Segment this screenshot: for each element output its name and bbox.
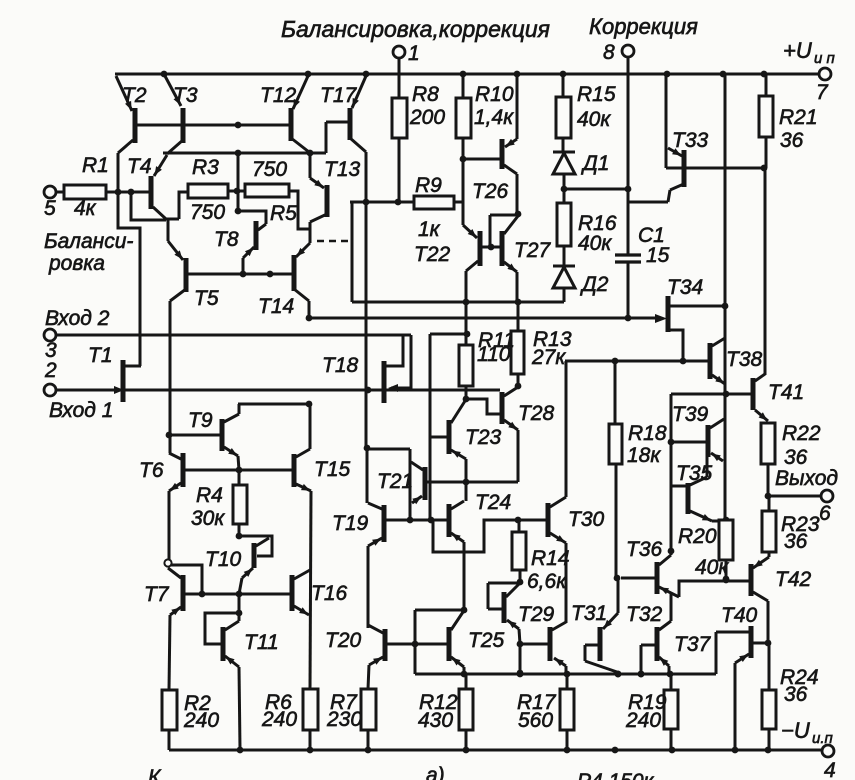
svg-text:Т23: Т23 — [465, 426, 502, 449]
svg-text:Т39: Т39 — [672, 403, 709, 426]
svg-text:6: 6 — [819, 502, 831, 525]
svg-text:Т28: Т28 — [518, 402, 555, 425]
svg-text:15: 15 — [646, 244, 670, 267]
svg-text:Т11: Т11 — [244, 631, 279, 654]
svg-text:Т42: Т42 — [775, 568, 812, 591]
svg-text:R14: R14 — [531, 547, 570, 570]
svg-text:Т20: Т20 — [325, 629, 362, 652]
svg-text:R4: R4 — [196, 484, 223, 507]
svg-text:110: 110 — [477, 343, 511, 366]
svg-text:Д1: Д1 — [581, 152, 609, 175]
svg-text:Т24: Т24 — [475, 491, 511, 514]
svg-text:7: 7 — [816, 81, 829, 104]
svg-text:8: 8 — [603, 41, 615, 64]
svg-text:40к: 40к — [695, 556, 729, 579]
svg-text:36: 36 — [784, 530, 808, 553]
svg-text:2: 2 — [44, 359, 57, 382]
svg-text:6,6к: 6,6к — [527, 570, 567, 593]
svg-text:R21: R21 — [779, 106, 818, 129]
svg-text:Баланси-: Баланси- — [44, 230, 133, 253]
svg-text:Т1: Т1 — [88, 344, 113, 367]
svg-text:R22: R22 — [782, 422, 821, 445]
svg-text:240: 240 — [183, 709, 219, 732]
svg-text:18к: 18к — [627, 444, 661, 467]
svg-text:Т33: Т33 — [672, 129, 709, 152]
svg-text:Т22: Т22 — [414, 243, 451, 266]
svg-text:40к: 40к — [578, 232, 612, 255]
svg-text:230: 230 — [326, 708, 362, 731]
svg-text:Коррекция: Коррекция — [589, 14, 698, 39]
svg-text:Т19: Т19 — [332, 512, 369, 535]
svg-text:Т25: Т25 — [468, 629, 505, 652]
svg-text:40к: 40к — [577, 108, 611, 131]
svg-text:К: К — [148, 766, 162, 780]
svg-text:Т5: Т5 — [194, 287, 219, 310]
svg-text:30к: 30к — [191, 507, 225, 530]
svg-text:R3: R3 — [192, 156, 219, 179]
svg-text:4: 4 — [824, 759, 836, 780]
svg-text:27к: 27к — [531, 346, 566, 369]
svg-text:Т31: Т31 — [571, 602, 607, 625]
svg-text:Т30: Т30 — [568, 508, 605, 531]
svg-text:36: 36 — [784, 446, 808, 469]
svg-text:Вход 1: Вход 1 — [49, 399, 113, 422]
svg-text:240: 240 — [625, 709, 661, 732]
svg-text:Т34: Т34 — [667, 276, 703, 299]
svg-text:Т38: Т38 — [726, 348, 763, 371]
svg-text:Т7: Т7 — [144, 583, 170, 606]
svg-text:Р4 150к: Р4 150к — [577, 770, 655, 780]
svg-text:Т16: Т16 — [311, 582, 348, 605]
svg-text:Т32: Т32 — [626, 603, 663, 626]
svg-text:Т26: Т26 — [472, 180, 509, 203]
svg-text:560: 560 — [518, 709, 553, 732]
svg-text:ровка: ровка — [48, 252, 105, 275]
svg-text:Выход: Выход — [775, 467, 838, 490]
svg-text:R1: R1 — [82, 154, 109, 177]
svg-text:Т14: Т14 — [258, 295, 294, 318]
svg-text:750: 750 — [190, 201, 225, 224]
svg-text:R5: R5 — [270, 202, 297, 225]
svg-text:Т2: Т2 — [122, 84, 147, 107]
svg-text:Т12: Т12 — [260, 84, 297, 107]
svg-text:36: 36 — [784, 683, 808, 706]
svg-text:750: 750 — [252, 158, 287, 181]
svg-text:а): а) — [426, 764, 445, 780]
svg-text:Т40: Т40 — [721, 604, 758, 627]
svg-text:5: 5 — [44, 197, 56, 220]
svg-text:430: 430 — [418, 709, 453, 732]
svg-text:1: 1 — [408, 42, 420, 65]
svg-text:1к: 1к — [418, 218, 441, 241]
svg-text:Т41: Т41 — [768, 381, 804, 404]
svg-text:Д2: Д2 — [580, 273, 609, 296]
svg-text:Т29: Т29 — [518, 603, 555, 626]
svg-text:Вход 2: Вход 2 — [45, 307, 110, 330]
svg-text:200: 200 — [409, 106, 445, 129]
svg-text:Т21: Т21 — [377, 470, 413, 493]
svg-text:1,4к: 1,4к — [474, 106, 514, 129]
svg-text:Т17: Т17 — [320, 84, 358, 107]
svg-text:240: 240 — [261, 708, 297, 731]
svg-text:Т13: Т13 — [324, 158, 361, 181]
svg-text:Т35: Т35 — [676, 462, 713, 485]
svg-text:R20: R20 — [678, 525, 717, 548]
svg-text:R10: R10 — [475, 83, 514, 106]
svg-text:R8: R8 — [412, 83, 439, 106]
svg-text:Т4: Т4 — [127, 155, 152, 178]
svg-text:Т15: Т15 — [314, 458, 351, 481]
svg-text:−U: −U — [781, 718, 810, 743]
svg-text:R15: R15 — [577, 83, 616, 106]
svg-text:и п: и п — [814, 50, 835, 67]
svg-text:Т10: Т10 — [205, 548, 242, 571]
svg-text:Т27: Т27 — [514, 239, 552, 262]
svg-text:Т18: Т18 — [322, 354, 359, 377]
svg-text:Т6: Т6 — [139, 459, 164, 482]
svg-text:R18: R18 — [628, 422, 667, 445]
svg-text:Т9: Т9 — [188, 409, 213, 432]
svg-text:Т37: Т37 — [674, 633, 712, 656]
svg-text:Балансировка,коррекция: Балансировка,коррекция — [281, 16, 550, 42]
svg-text:Т36: Т36 — [626, 538, 663, 561]
svg-text:Т3: Т3 — [173, 84, 198, 107]
svg-text:36: 36 — [780, 129, 804, 152]
svg-text:R9: R9 — [415, 174, 442, 197]
svg-text:Т8: Т8 — [214, 228, 239, 251]
svg-text:4к: 4к — [74, 197, 97, 220]
svg-text:+U: +U — [783, 38, 812, 63]
